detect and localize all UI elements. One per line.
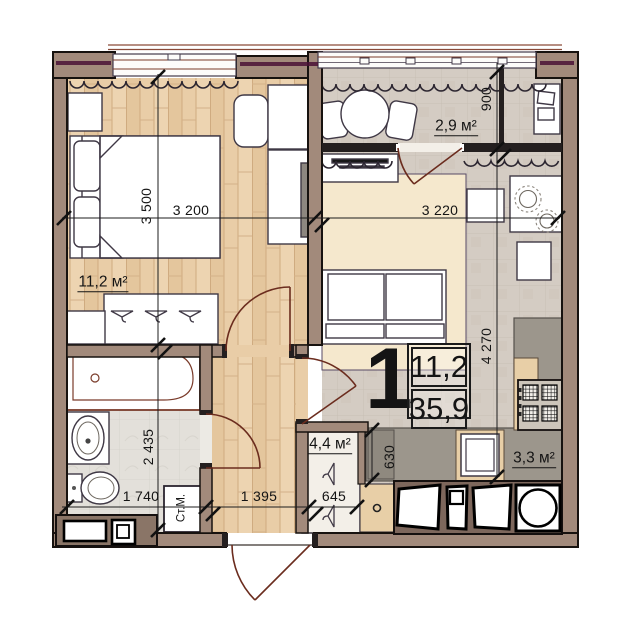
dim-bath-height: 2 435 xyxy=(141,429,155,466)
wall-bedroom-living xyxy=(308,52,322,345)
wall-bottom-right xyxy=(314,533,578,547)
bedroom-door-opening xyxy=(226,345,290,357)
vent-shaft-5 xyxy=(64,521,106,541)
wall-left xyxy=(53,52,67,547)
wall-hall-living-2 xyxy=(296,424,308,533)
dim-bedroom-height: 3 500 xyxy=(139,188,153,225)
bath-door-opening xyxy=(200,414,212,468)
wall-closet-right xyxy=(358,432,365,484)
area-label-balcony: 2,9 м² xyxy=(434,118,478,136)
wall-right xyxy=(562,52,578,547)
balcony-door-opening xyxy=(398,143,462,152)
pouf xyxy=(234,95,268,147)
dim-counter-depth: 630 xyxy=(382,445,396,469)
dim-balcony-height: 900 xyxy=(479,87,493,111)
balcony-chair-right xyxy=(385,100,418,141)
unit-area-box: 11,2 35,9 xyxy=(407,343,471,419)
dim-bedroom-width: 3 200 xyxy=(173,203,210,217)
area-label-closet: 4,4 м² xyxy=(308,436,352,454)
area-label-kitchen: 3,3 м² xyxy=(512,450,556,468)
living-door-opening xyxy=(296,358,308,424)
vent-block-right xyxy=(394,481,562,534)
washing-machine-label: Ст.М. xyxy=(176,494,188,522)
bathroom-sink xyxy=(67,412,109,464)
unit-type-number: 1 xyxy=(365,336,413,422)
unit-living-area: 11,2 xyxy=(411,347,467,387)
area-label-bedroom: 11,2 м² xyxy=(77,274,128,292)
entry-door xyxy=(232,545,310,600)
closet-side-strip xyxy=(360,484,394,532)
vent-shaft-6 xyxy=(112,520,135,544)
unit-total-area: 35,9 xyxy=(411,389,467,429)
dim-kitchen-height: 4 270 xyxy=(479,328,493,365)
floor-plan-drawing xyxy=(0,0,632,632)
stove xyxy=(518,380,562,430)
dim-living-width: 3 220 xyxy=(422,203,459,217)
toilet xyxy=(67,472,119,504)
wall-bath-hall-2 xyxy=(200,468,212,533)
floor-plan: 3 500 3 200 3 220 900 4 270 2 435 1 740 … xyxy=(0,0,632,632)
vent-block-left xyxy=(56,515,157,546)
dim-bath-width: 1 740 xyxy=(123,489,160,503)
bedroom-window xyxy=(113,54,236,76)
vent-shaft-2 xyxy=(447,486,467,529)
wall-bath-hall-1 xyxy=(200,345,212,414)
balcony-table xyxy=(341,90,389,138)
vent-shaft-round xyxy=(516,485,560,531)
vent-shaft-3 xyxy=(473,485,511,529)
dim-closet-width: 645 xyxy=(322,489,346,503)
balcony-divider xyxy=(499,66,504,144)
nightstand xyxy=(68,93,102,131)
wardrobe-tall xyxy=(268,85,309,244)
dim-hall-width: 1 395 xyxy=(241,489,278,503)
side-table xyxy=(467,189,504,222)
vent-shaft-1 xyxy=(397,485,440,529)
kitchen-stool xyxy=(517,242,551,280)
